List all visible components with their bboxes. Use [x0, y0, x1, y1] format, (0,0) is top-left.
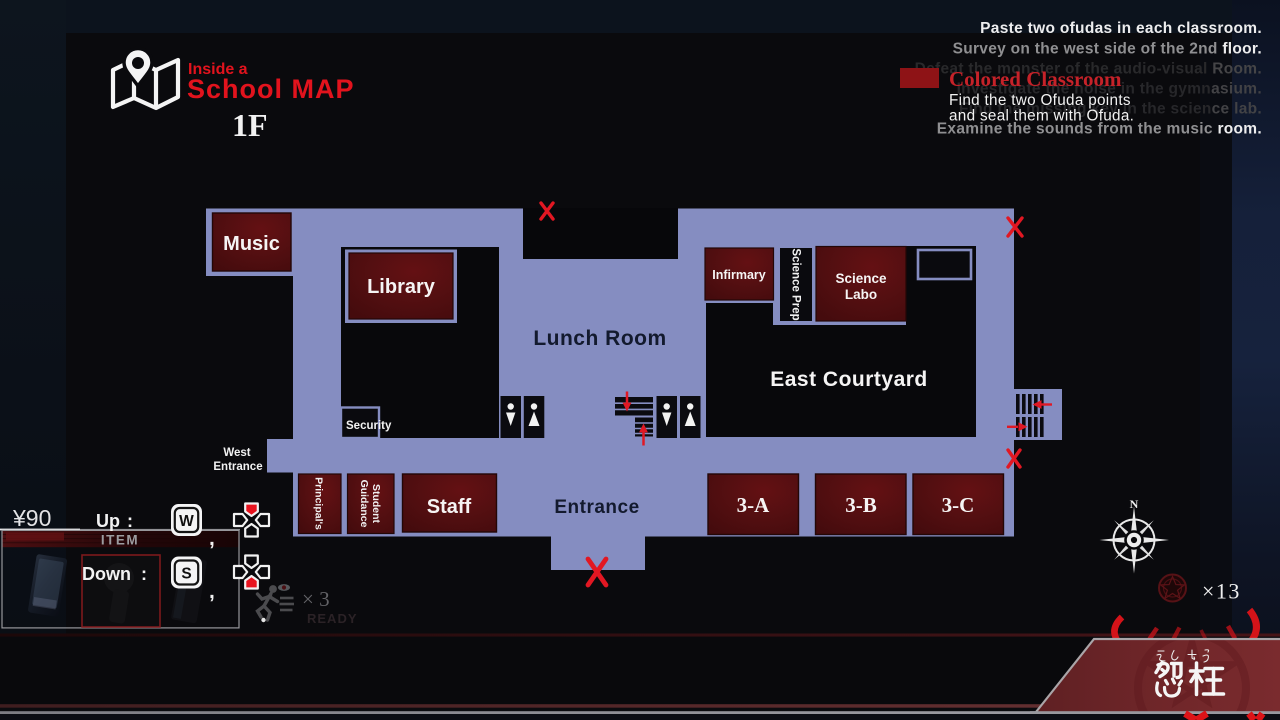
svg-text:1F: 1F [232, 107, 268, 143]
svg-text:ITEM: ITEM [101, 533, 139, 548]
svg-text:School MAP: School MAP [187, 74, 355, 104]
svg-text:Student: Student [370, 484, 382, 524]
svg-text:,: , [209, 527, 215, 550]
svg-text:READY: READY [307, 611, 358, 626]
svg-text:S: S [181, 566, 191, 583]
svg-text:Guidance: Guidance [358, 480, 370, 528]
svg-text:¥90: ¥90 [12, 505, 51, 531]
svg-text:3-C: 3-C [942, 493, 975, 517]
svg-text:3-B: 3-B [845, 493, 877, 517]
svg-text:W: W [179, 513, 194, 530]
svg-text:West: West [223, 447, 250, 459]
svg-text:×13: ×13 [1202, 579, 1241, 604]
svg-text:Staff: Staff [427, 496, 472, 518]
svg-text:Labo: Labo [845, 287, 877, 302]
svg-text:East Courtyard: East Courtyard [770, 368, 928, 391]
svg-text:Security: Security [346, 420, 392, 432]
svg-text:Music: Music [223, 233, 280, 255]
svg-text:Library: Library [367, 276, 436, 298]
svg-text:Entrance: Entrance [554, 497, 639, 518]
svg-text:Principal's: Principal's [313, 477, 325, 530]
svg-text:Entrance: Entrance [213, 461, 262, 473]
svg-text:Paste two ofudas in each class: Paste two ofudas in each classroom. [980, 20, 1262, 37]
svg-text:,: , [209, 580, 215, 603]
svg-text:Up: Up [96, 511, 120, 531]
svg-text:Infirmary: Infirmary [712, 268, 766, 282]
svg-text:Survey on the west side of the: Survey on the west side of the 2nd floor… [953, 41, 1262, 58]
svg-text:Lunch Room: Lunch Room [533, 327, 666, 350]
svg-text:Down: Down [82, 564, 131, 584]
svg-text:3-A: 3-A [737, 493, 770, 517]
svg-text::: : [141, 564, 147, 584]
svg-text:Colored Classroom: Colored Classroom [949, 67, 1122, 91]
svg-text:N: N [1130, 497, 1139, 511]
svg-text:Science Prep: Science Prep [790, 248, 802, 320]
svg-text:and seal them with Ofuda.: and seal them with Ofuda. [949, 108, 1134, 125]
svg-text:× 3: × 3 [302, 587, 330, 611]
svg-text::: : [127, 511, 133, 531]
svg-text:Science: Science [835, 271, 887, 286]
svg-text:Find the two Ofuda points: Find the two Ofuda points [949, 92, 1131, 109]
